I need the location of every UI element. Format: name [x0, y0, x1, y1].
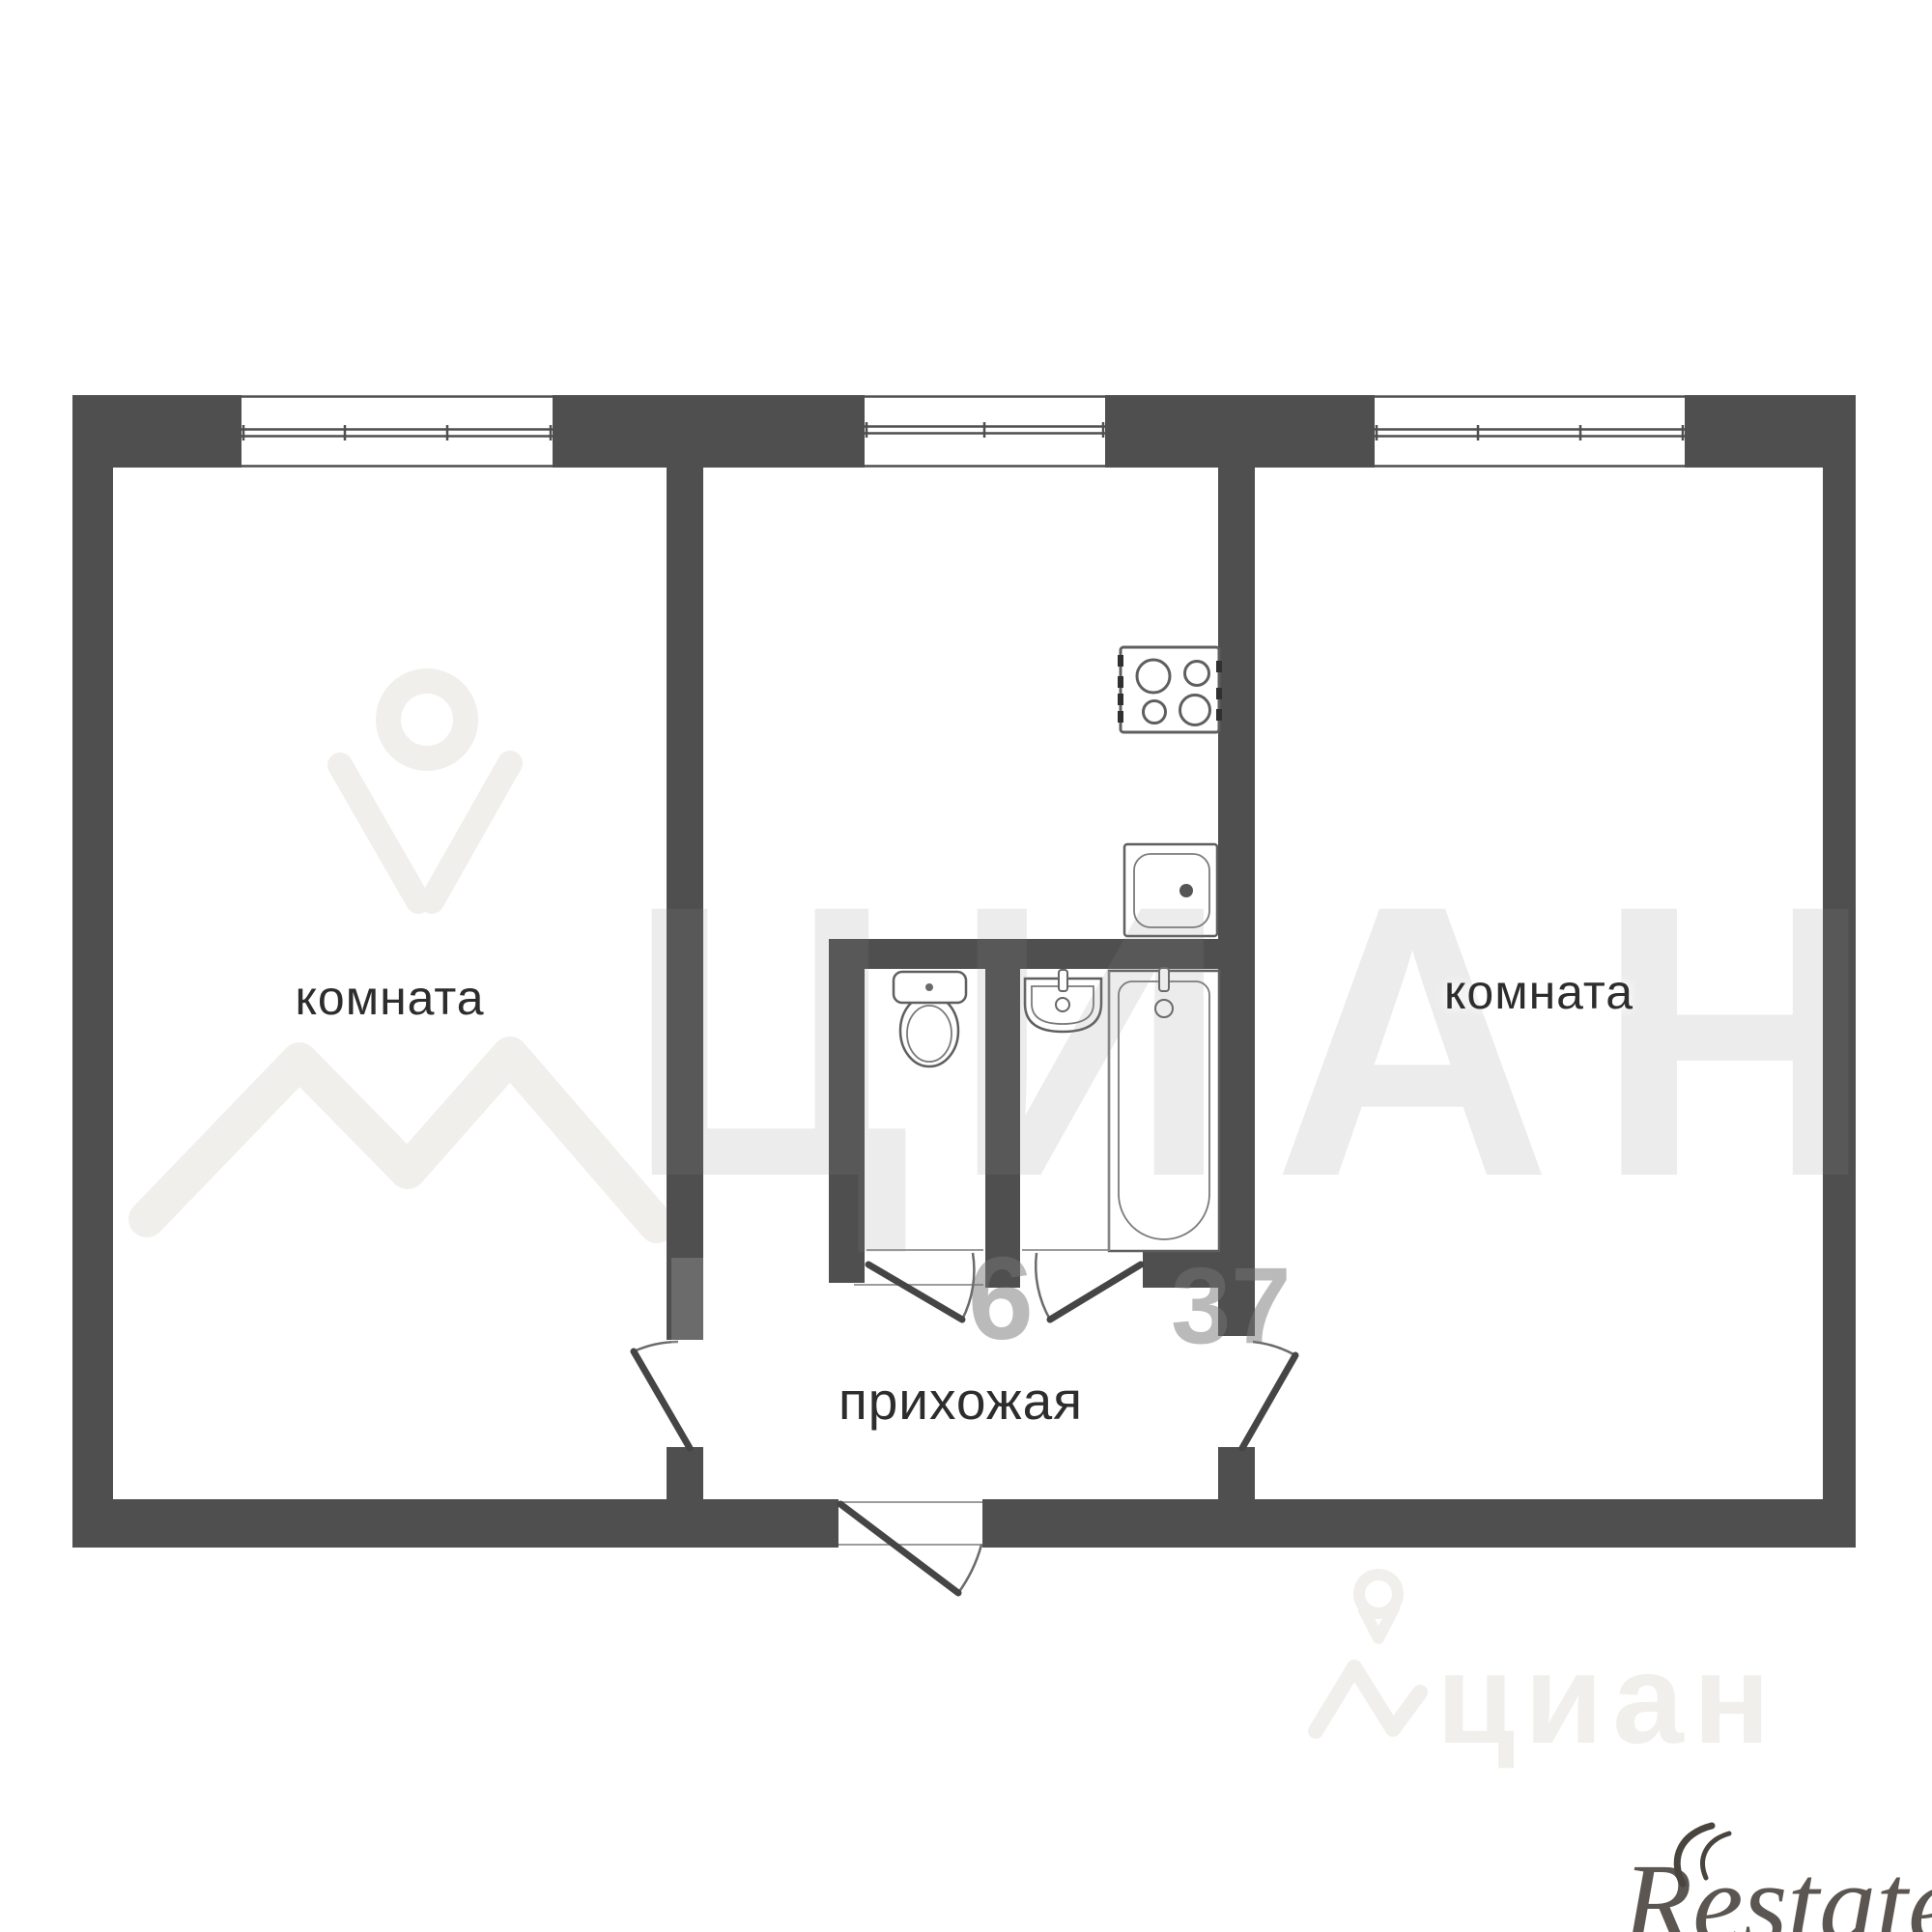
window-kitchen — [865, 395, 1105, 468]
restate-watermark: Restate — [1623, 1847, 1932, 1932]
stove-icon — [1121, 647, 1219, 732]
room-label-right: комната — [1255, 964, 1823, 1020]
door-bathroom — [1036, 1253, 1141, 1320]
room-label-left: комната — [113, 970, 667, 1026]
watermark-digits-right: 37 — [1171, 1252, 1292, 1360]
window-left-room — [241, 395, 553, 468]
watermark-wall-artifact — [671, 1258, 706, 1366]
door-entrance — [840, 1504, 981, 1593]
door-wc — [868, 1253, 974, 1320]
floor-plan: комната комната прихожая ЦИАН 6 37 циан … — [0, 0, 1932, 1932]
watermark-digits-left: 6 — [968, 1239, 1034, 1357]
cian-watermark-large: ЦИАН — [626, 848, 1918, 1235]
hallway-label: прихожая — [703, 1370, 1218, 1432]
window-right-room — [1375, 395, 1685, 468]
